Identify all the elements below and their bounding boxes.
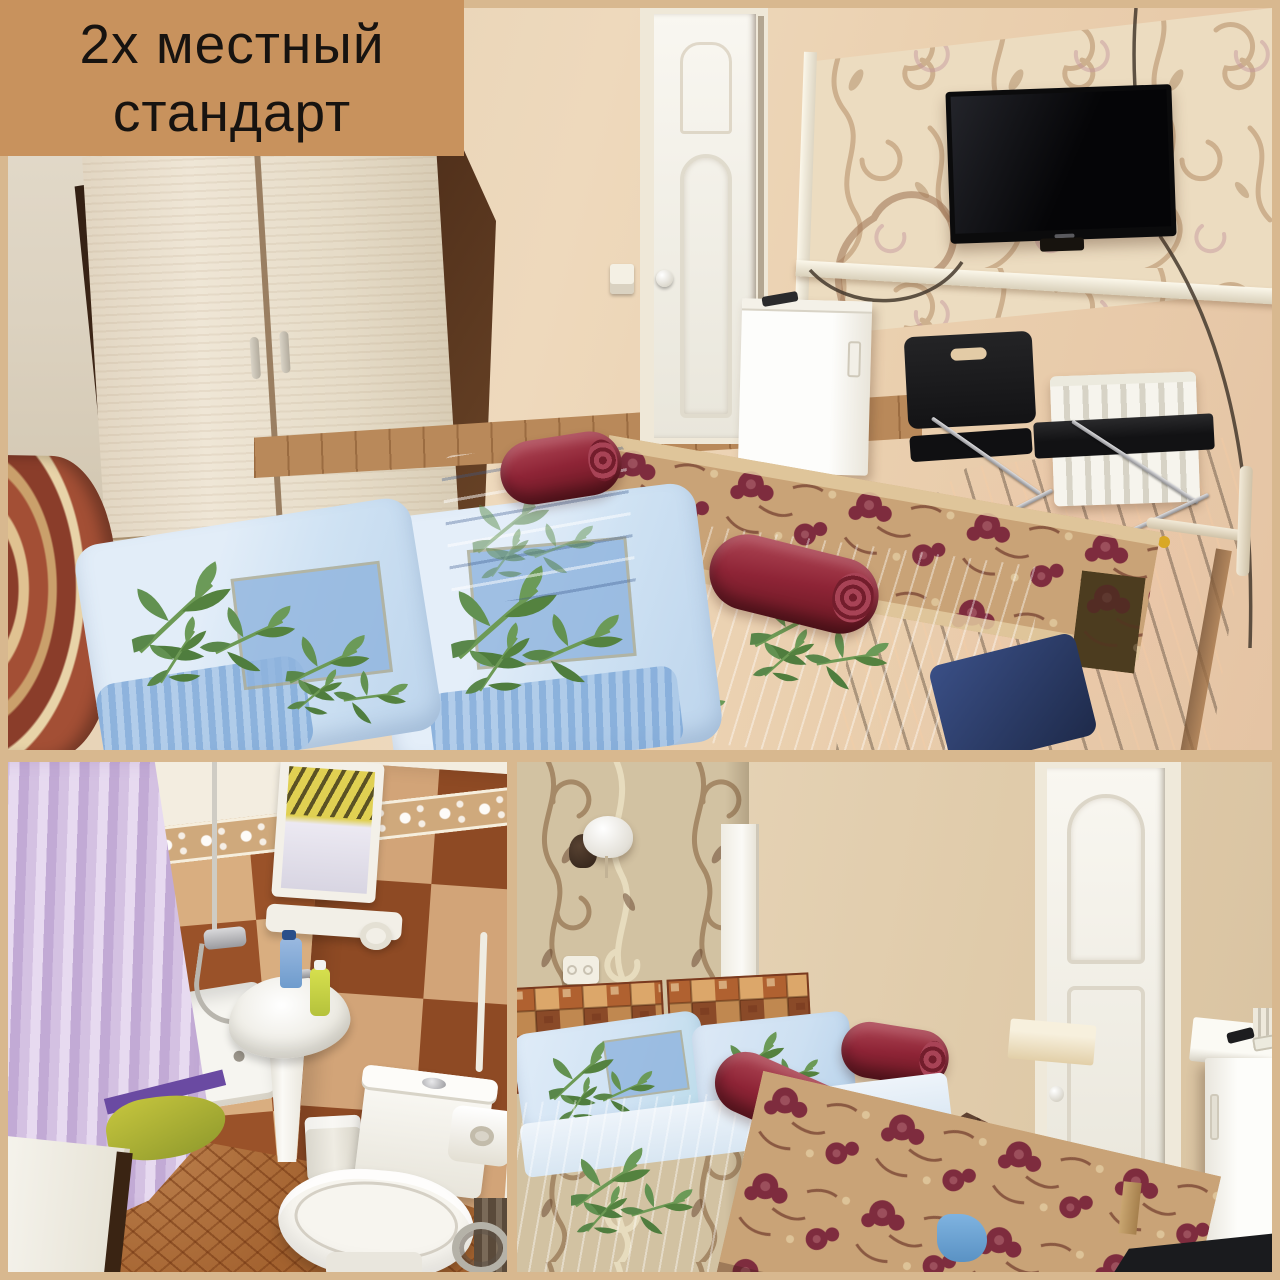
room-type-line1: 2х местный (79, 10, 384, 78)
room-type-label: 2х местный стандарт (0, 0, 464, 156)
flex-pipe-coil (452, 1222, 507, 1272)
toilet-paper-roll (447, 1104, 507, 1167)
bamboo-print (571, 1142, 721, 1247)
photo-bathroom (8, 762, 507, 1272)
soap-dispenser (310, 968, 330, 1016)
door-panel-upper (680, 42, 732, 134)
room-type-line2: стандарт (113, 78, 351, 146)
door-knob (1049, 1086, 1064, 1102)
bedspread-hanging-corner (1070, 570, 1145, 673)
fridge-handle (847, 341, 861, 377)
door-arched-panel (1067, 794, 1145, 964)
pillow-left (72, 495, 445, 750)
fridge-handle (1210, 1094, 1219, 1140)
tray-drain (233, 1050, 246, 1063)
lamp-pull-chain (605, 856, 608, 878)
door-panel-lower (680, 154, 732, 418)
socket-outlet (567, 965, 577, 975)
mirror (271, 762, 385, 903)
chair-backrest (904, 331, 1037, 430)
chair-hand-hole (950, 347, 987, 361)
toilet-base (326, 1252, 422, 1272)
wall-lamp-shade (583, 816, 633, 858)
spray-bottle (280, 938, 302, 988)
paper-roll-core (469, 1125, 495, 1148)
ac-remote (1252, 1034, 1272, 1052)
door-knob (656, 270, 673, 287)
socket-outlet (583, 965, 593, 975)
shower-pipe (212, 762, 217, 942)
soap-pump (314, 960, 326, 970)
shelf-cup-holder (360, 922, 392, 950)
mirror-reflection-pattern (286, 766, 375, 820)
tv-bracket (1040, 237, 1084, 252)
hanging-blue-cloth (937, 1214, 987, 1262)
light-switch (610, 264, 634, 294)
photo-bedroom-second (517, 762, 1272, 1272)
spray-nozzle (282, 930, 296, 940)
tv (945, 84, 1176, 244)
bedside-bench (1007, 1018, 1096, 1065)
photo-collage: 2х местный стандарт (0, 0, 1280, 1280)
tv-screen (951, 89, 1172, 233)
power-socket (563, 956, 599, 984)
